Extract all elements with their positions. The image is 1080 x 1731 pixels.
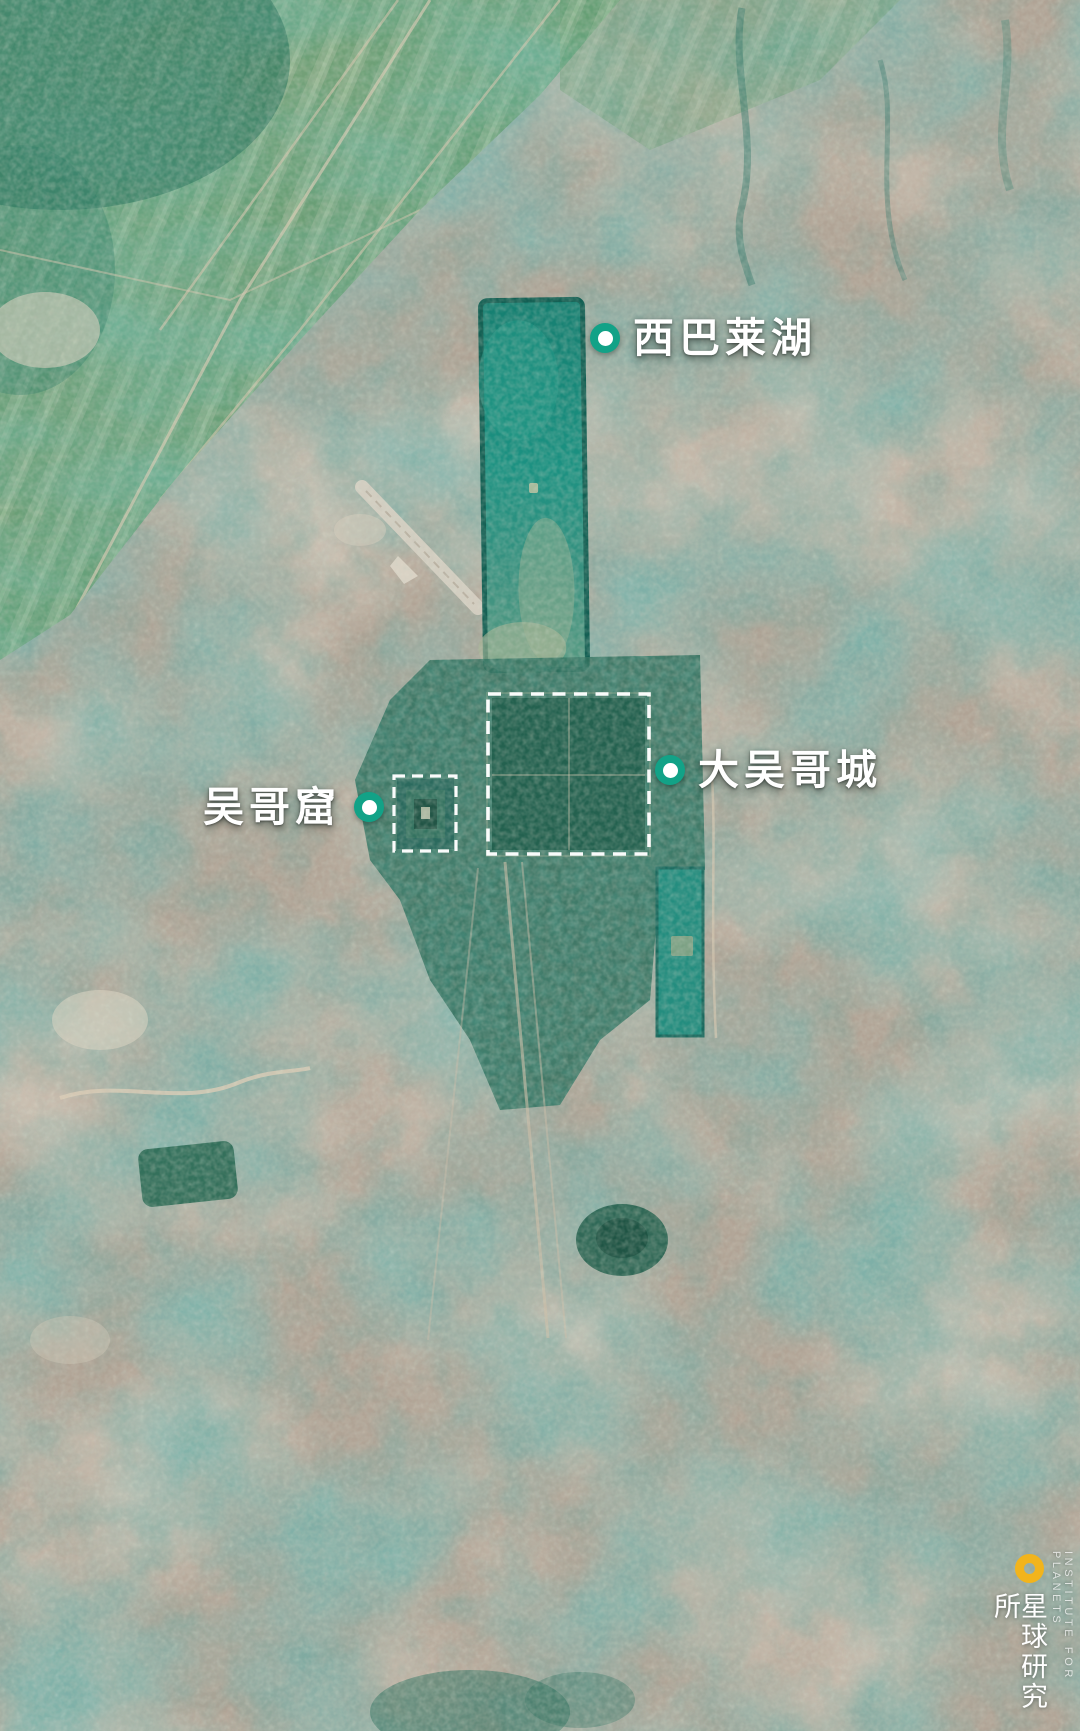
watermark-en: INSTITUTE FOR PLANETS: [1050, 1551, 1074, 1731]
map-canvas: 西巴莱湖 大吴哥城 吴哥窟 星球研究所 INSTITUTE FOR PLANET…: [0, 0, 1080, 1731]
haze-overlay: [0, 0, 1080, 1731]
satellite-imagery: [0, 0, 1080, 1731]
planet-institute-logo-icon: [1015, 1554, 1044, 1583]
watermark-cn: 星球研究所: [1013, 1592, 1045, 1731]
